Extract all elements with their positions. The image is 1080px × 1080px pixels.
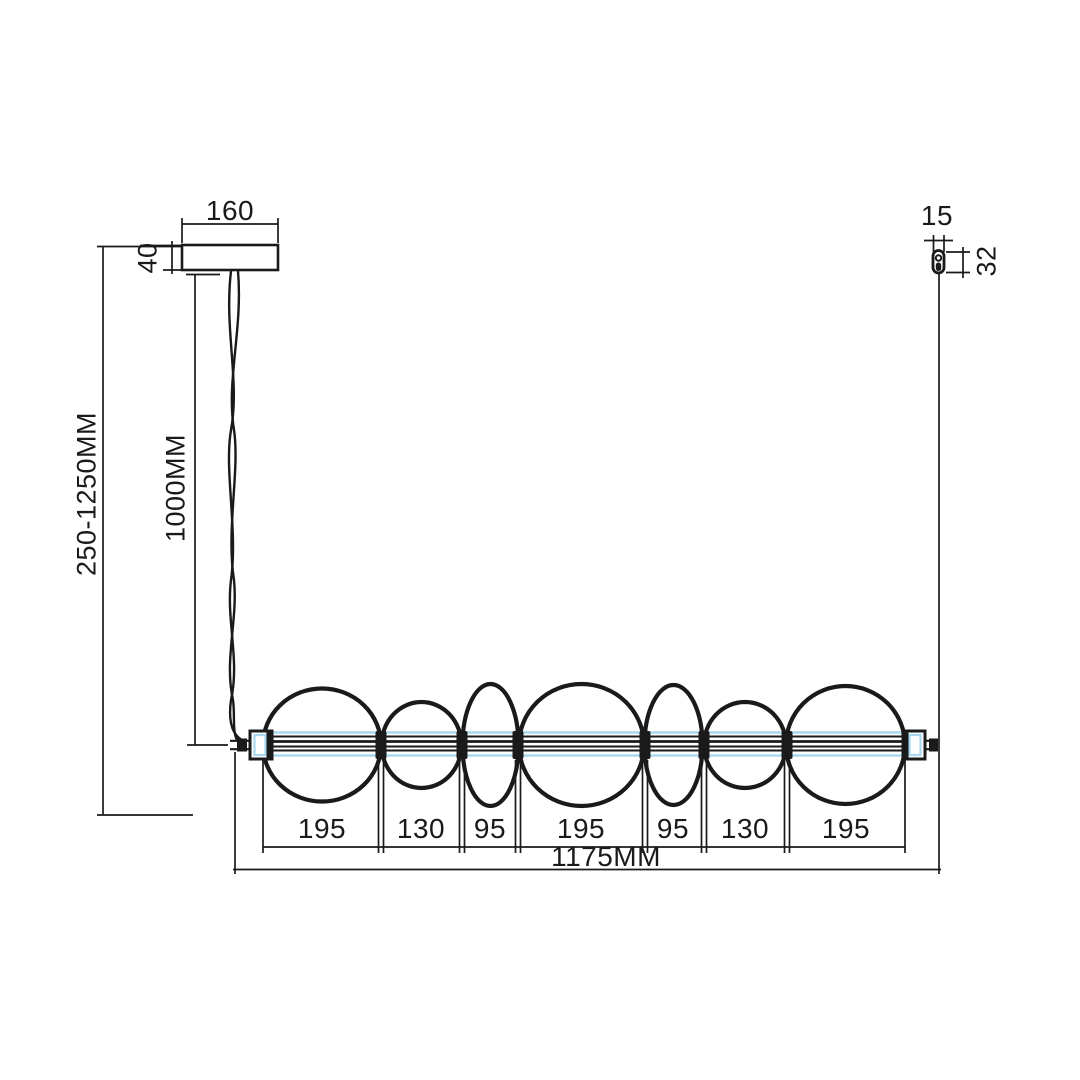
- dim-label-overall-length: 1175MM: [551, 843, 661, 871]
- ceiling-canopy: [182, 245, 278, 270]
- cable-strand: [229, 271, 246, 742]
- left-stub-nub: [237, 739, 247, 752]
- bulb-connector: [782, 731, 793, 759]
- dim-label-gripper-height: 32: [974, 245, 1001, 276]
- bulb-connector: [457, 731, 468, 759]
- end-cap-bar: [267, 733, 273, 758]
- glass-bulb: [645, 685, 703, 805]
- dim-label-segment: 195: [822, 815, 870, 843]
- glass-bulbs: [263, 684, 905, 806]
- dim-label-canopy-width: 160: [206, 197, 254, 225]
- glass-bulb: [263, 689, 381, 802]
- cable-strand: [230, 271, 246, 748]
- gripper-clamp: [936, 263, 941, 272]
- dim-cable-length-lines: [186, 274, 228, 745]
- dim-label-segment: 130: [397, 815, 445, 843]
- dim-label-canopy-height: 40: [135, 242, 162, 273]
- dim-label-suspension-range: 250-1250MM: [74, 412, 101, 576]
- end-cap-bar: [903, 733, 909, 758]
- dim-label-segment: 130: [721, 815, 769, 843]
- cable-gripper: [933, 251, 944, 274]
- bulb-connector: [699, 731, 710, 759]
- dimension-lines: [97, 218, 970, 874]
- right-stub-nub: [929, 739, 938, 752]
- glass-bulb: [382, 702, 462, 788]
- dim-label-segment: 195: [557, 815, 605, 843]
- glass-bulb: [519, 684, 644, 806]
- dim-label-cable-length: 1000MM: [163, 434, 190, 542]
- dim-label-segment: 195: [298, 815, 346, 843]
- glass-bulb: [704, 702, 786, 788]
- suspension-cable: [229, 271, 246, 748]
- rod-lines: [252, 737, 923, 751]
- bulb-connector: [376, 731, 387, 759]
- bulb-connector: [640, 731, 651, 759]
- end-cap-right: [903, 731, 925, 759]
- gripper-hole: [936, 255, 941, 260]
- light-bar: [230, 733, 938, 756]
- glass-bulb: [786, 686, 905, 804]
- glass-bulb: [463, 684, 519, 806]
- dim-gripper-height-lines: [946, 247, 970, 278]
- dim-label-gripper-width: 15: [921, 202, 953, 230]
- end-cap-left: [250, 731, 272, 759]
- dim-label-segment: 95: [657, 815, 689, 843]
- bulb-connector: [513, 731, 524, 759]
- dim-overall-lines: [233, 274, 941, 874]
- technical-drawing: 160 40 250-1250MM 1000MM 15 32 195 130 9…: [0, 0, 1080, 1080]
- dim-label-segment: 95: [474, 815, 506, 843]
